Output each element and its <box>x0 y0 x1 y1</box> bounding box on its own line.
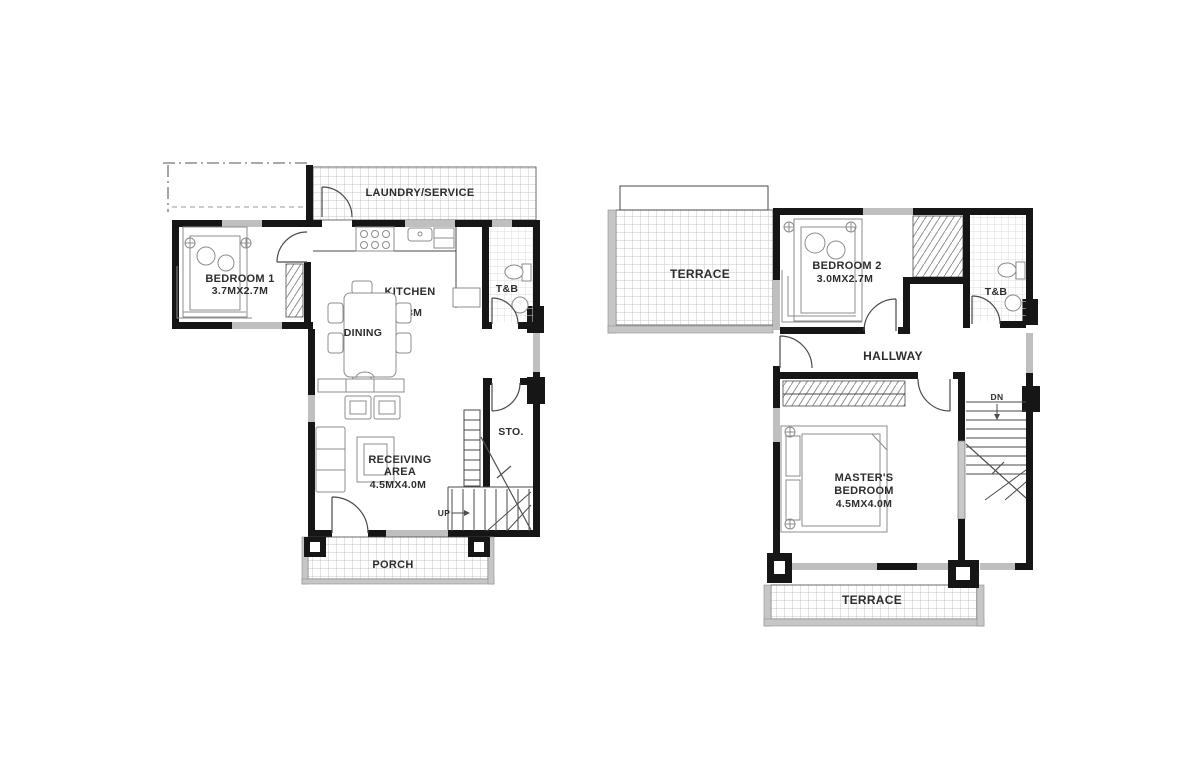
door-arc <box>864 299 896 331</box>
gf-roof-overhang-dashes <box>163 163 310 212</box>
up-arrow-icon <box>464 510 470 516</box>
sink-icon <box>408 228 432 241</box>
gf-receiving-dim: 4.5MX4.0M <box>370 479 426 491</box>
gf-dining-label: DINING <box>344 327 383 339</box>
door-arc <box>332 497 368 533</box>
sf-master-line1: MASTER'S <box>835 472 894 484</box>
window <box>773 280 780 330</box>
wall-pier <box>1022 386 1040 412</box>
sf-stairs-dn-label: DN <box>991 392 1004 402</box>
gf-bedroom1-label: BEDROOM 1 <box>205 273 274 285</box>
door-arc <box>780 336 812 368</box>
sofa-icon <box>316 427 345 492</box>
door-arc <box>918 379 950 411</box>
sf-stairs: DN <box>966 392 1026 500</box>
gf-sto-label: STO. <box>498 426 524 438</box>
sink-icon <box>1005 295 1021 311</box>
floor-plans-canvas: LAUNDRY/SERVICE BEDROOM 1 <box>0 0 1199 767</box>
sf-hallway: HALLWAY <box>863 349 923 363</box>
sf-master-line2: BEDROOM <box>834 485 894 497</box>
door-arc <box>277 232 307 262</box>
sf-master-bedroom: MASTER'S BEDROOM 4.5MX4.0M <box>773 372 965 570</box>
door-arc <box>492 383 520 411</box>
sf-tb-label: T&B <box>985 286 1008 298</box>
sf-bedroom2-label: BEDROOM 2 <box>812 260 881 272</box>
window <box>386 530 448 537</box>
gf-receiving-line2: AREA <box>384 466 416 478</box>
gf-bedroom1-dim: 3.7MX2.7M <box>212 285 268 297</box>
column <box>767 553 792 583</box>
counter <box>453 288 480 307</box>
stove-icon <box>356 227 394 251</box>
window <box>232 322 282 329</box>
gf-tb-label: T&B <box>496 283 519 295</box>
sf-bedroom2-dim: 3.0MX2.7M <box>817 273 873 285</box>
floor-plan-sheet: LAUNDRY/SERVICE BEDROOM 1 <box>0 0 1199 767</box>
gf-toilet-bath: T&B <box>482 222 533 329</box>
window <box>863 208 913 215</box>
column <box>468 537 490 557</box>
window <box>773 408 780 442</box>
column <box>948 560 979 588</box>
window <box>1026 333 1033 373</box>
sf-bedroom2: BEDROOM 2 3.0MX2.7M <box>780 219 910 334</box>
closet <box>286 264 303 317</box>
second-floor-plan: TERRACE <box>608 186 1040 626</box>
gf-storage: STO. <box>483 378 533 487</box>
window <box>980 563 1015 570</box>
gf-receiving-line1: RECEIVING <box>368 454 431 466</box>
armchair-icon <box>345 396 371 419</box>
gf-porch: PORCH <box>302 537 494 584</box>
sf-closet <box>903 216 963 284</box>
window <box>308 395 315 422</box>
window <box>492 220 512 227</box>
gf-stairs-up-label: UP <box>438 508 450 518</box>
gf-porch-label: PORCH <box>372 559 413 571</box>
armchair-icon <box>374 396 400 419</box>
window <box>222 220 262 227</box>
gf-receiving: RECEIVING AREA 4.5MX4.0M <box>316 372 432 492</box>
cabinet <box>958 441 965 519</box>
gf-laundry-label: LAUNDRY/SERVICE <box>365 187 474 199</box>
window <box>792 563 877 570</box>
window <box>405 220 455 227</box>
sf-hallway-label: HALLWAY <box>863 349 923 363</box>
sf-terrace-top-label: TERRACE <box>670 267 730 281</box>
down-arrow-icon <box>994 414 1000 420</box>
window <box>917 563 950 570</box>
sf-terrace-bottom-label: TERRACE <box>842 593 902 607</box>
column <box>304 537 326 557</box>
window <box>533 333 540 372</box>
sf-master-dim: 4.5MX4.0M <box>836 498 892 510</box>
ground-floor-plan: LAUNDRY/SERVICE BEDROOM 1 <box>163 163 545 584</box>
fridge-icon <box>434 228 454 248</box>
closet <box>783 381 905 406</box>
sf-terrace-top: TERRACE <box>608 186 773 333</box>
